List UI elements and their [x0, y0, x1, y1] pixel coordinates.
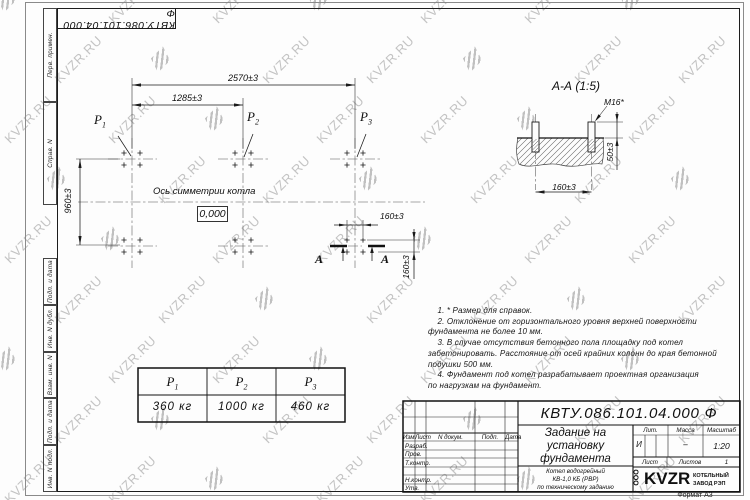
table-value-p3: 460 кг [276, 401, 345, 413]
logo-org-line2: ЗАВОД РЭП [693, 481, 725, 487]
product-line3: по техническому заданию [518, 484, 633, 491]
scale-header: Масштаб [703, 427, 740, 434]
anchor-bolt-thread-label: M16* [604, 97, 624, 107]
mass-header: Масса [668, 427, 703, 434]
sheets-cell: Листов 1 [667, 457, 740, 467]
product-line1: Котел водогрейный [518, 468, 633, 475]
format-label: Формат А3 [660, 492, 730, 499]
load-p1-label: P1 [94, 112, 106, 130]
dim-depth-label: 960±3 [63, 185, 73, 217]
note-line: 3. В случае отсутствия бетонного пола пл… [428, 338, 746, 349]
product-line2: КВ-1,0 КБ (РВР) [518, 476, 633, 483]
dim-bolt-spacing-x-label: 160±3 [380, 211, 404, 221]
sheet-label: Лист [633, 459, 667, 466]
scale-value: 1:20 [703, 441, 740, 451]
note-line: подушки 500 мм. [428, 360, 746, 371]
section-view-title: А-А (1:5) [545, 79, 607, 93]
title-block-title-line1: Задание на [518, 427, 633, 439]
elevation-mark-box: 0,000 [197, 206, 228, 222]
dim-bolt-protrusion-label: 50±3 [605, 137, 615, 167]
title-block-title-line2: установку [518, 440, 633, 452]
table-header-p3: P3 [276, 374, 345, 392]
kvzr-logo: KVZR [644, 469, 690, 489]
rev-header-podp: Подп. [475, 434, 505, 441]
section-letter-left: А [315, 252, 323, 267]
drawing-linework [0, 0, 750, 500]
table-header-p2: P2 [207, 374, 276, 392]
dim-section-spacing-label: 160±3 [548, 182, 580, 192]
row-label-nkontr: Н.контр. [405, 477, 432, 484]
title-block-doc-number: КВТУ.086.101.04.000 Ф [520, 403, 738, 424]
row-label-razrab: Разраб. [405, 443, 428, 450]
boiler-symmetry-axis-label: Ось симметрии котла [153, 186, 247, 197]
note-line: 4. Фундамент под котел разрабатывает про… [428, 370, 746, 381]
dim-total-width-label: 2570±3 [213, 73, 273, 83]
technical-notes: 1. * Размер для справок. 2. Отклонение о… [428, 306, 746, 392]
load-p2-label: P2 [247, 109, 259, 127]
row-label-tkontr: Т.контр. [405, 460, 430, 467]
lit-value: И [633, 440, 645, 449]
logo-org-line1: КОТЕЛЬНЫЙ [693, 473, 729, 479]
row-label-utv: Утв. [405, 485, 419, 492]
dim-half-width-label: 1285±3 [157, 93, 217, 103]
drawing-sheet: KVZR.RUKVZR.RUKVZR.RUKVZR.RUKVZR.RUKVZR.… [0, 0, 750, 500]
rev-header-list: Лист [415, 434, 426, 441]
logo-ooo-rotated: ООО [634, 467, 641, 489]
note-line: фундамента не более 10 мм. [428, 327, 746, 338]
sheets-value: 1 [725, 459, 728, 466]
section-letter-right: А [381, 252, 389, 267]
lit-header: Лит. [633, 427, 668, 434]
dim-bolt-spacing-y-label: 160±3 [401, 251, 411, 283]
note-line: забетонировать. Расстояние от осей крайн… [428, 349, 746, 360]
row-label-prov: Пров. [405, 451, 422, 458]
table-header-p1: P1 [138, 374, 207, 392]
title-block-title-line3: фундамента [518, 453, 633, 465]
note-line: по нагрузкам на фундамент. [428, 381, 746, 392]
elevation-value: 0,000 [199, 208, 225, 220]
rev-header-ndokum: N докум. [426, 434, 475, 441]
rev-header-data: Дата [505, 434, 518, 441]
mass-value: – [668, 440, 703, 449]
rev-header-izm: Изм. [403, 434, 415, 441]
load-p3-label: P3 [360, 109, 372, 127]
sheets-label: Листов [679, 459, 702, 466]
table-value-p1: 360 кг [138, 401, 207, 413]
table-value-p2: 1000 кг [207, 401, 276, 413]
note-line: 2. Отклонение от горизонтального уровня … [428, 317, 746, 328]
note-line: 1. * Размер для справок. [428, 306, 746, 317]
